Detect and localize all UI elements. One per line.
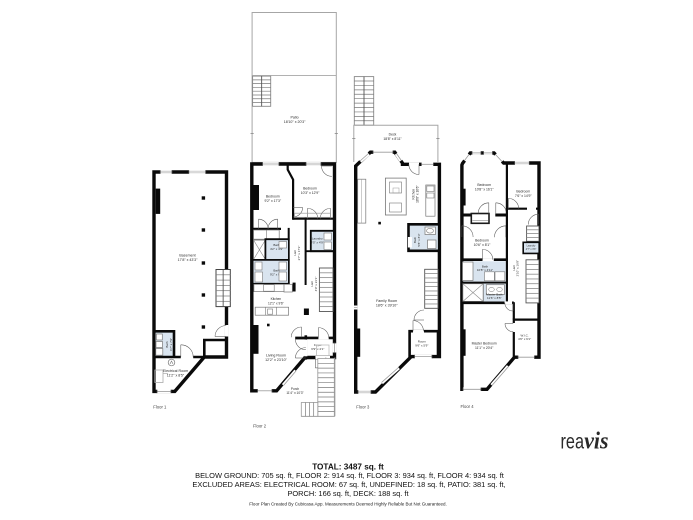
svg-text:10'8" x 4'11": 10'8" x 4'11" (477, 268, 493, 272)
svg-text:EXCLUDED AREAS: ELECTRICAL ROO: EXCLUDED AREAS: ELECTRICAL ROOM: 67 sq. … (192, 480, 505, 489)
svg-text:Deck: Deck (389, 133, 397, 137)
svg-text:2'10" x 16'9": 2'10" x 16'9" (516, 260, 520, 276)
svg-text:2'7" x 17'3": 2'7" x 17'3" (297, 246, 301, 261)
svg-text:18'10" x 20'3": 18'10" x 20'3" (284, 120, 306, 124)
svg-text:4'7" x 7'9": 4'7" x 7'9" (169, 338, 173, 351)
svg-text:10'3" x 12'9": 10'3" x 12'9" (301, 191, 320, 195)
svg-text:Basement: Basement (179, 254, 195, 258)
svg-text:Master Bedroom: Master Bedroom (472, 342, 497, 346)
svg-text:11'4" x 10'3": 11'4" x 10'3" (286, 391, 303, 395)
svg-text:Floor 2: Floor 2 (253, 424, 267, 429)
svg-text:5'8" x 8'3": 5'8" x 8'3" (417, 233, 421, 246)
svg-text:Bedroom: Bedroom (303, 187, 317, 191)
svg-text:17'8" x 43'3": 17'8" x 43'3" (178, 258, 198, 262)
svg-text:7'6" x 14'9": 7'6" x 14'9" (515, 194, 533, 198)
svg-text:6'9" x 4'1": 6'9" x 4'1" (311, 347, 324, 351)
svg-text:Floor Plan Created By Cubicasa: Floor Plan Created By Cubicasa App. Meas… (249, 502, 447, 507)
svg-text:12'2" x 23'10": 12'2" x 23'10" (265, 358, 287, 362)
svg-text:BELOW GROUND: 705 sq. ft, FLOO: BELOW GROUND: 705 sq. ft, FLOOR 2: 914 s… (195, 471, 505, 480)
svg-text:Bedroom: Bedroom (477, 183, 491, 187)
svg-text:11'1" x 20'4": 11'1" x 20'4" (475, 346, 494, 350)
svg-text:Bedroom: Bedroom (516, 190, 530, 194)
svg-text:Living Room: Living Room (266, 354, 286, 358)
svg-text:rea: rea (561, 430, 585, 454)
svg-text:18'8" x 16'6": 18'8" x 16'6" (416, 185, 420, 202)
svg-text:11'2" x 8'5": 11'2" x 8'5" (167, 374, 185, 378)
svg-text:Floor 3: Floor 3 (356, 404, 370, 409)
svg-text:Electrical Room: Electrical Room (163, 369, 188, 373)
svg-text:Bedroom: Bedroom (266, 195, 280, 199)
svg-text:Bedroom: Bedroom (475, 239, 489, 243)
svg-text:Family Room: Family Room (376, 299, 397, 303)
svg-text:9'6" x 5'9": 9'6" x 5'9" (415, 343, 428, 347)
svg-text:18'6" x 39'10": 18'6" x 39'10" (376, 304, 398, 308)
svg-text:PORCH: 166 sq. ft, DECK: 188 s: PORCH: 166 sq. ft, DECK: 188 sq. ft (287, 489, 409, 498)
svg-text:12'1" x 9'6": 12'1" x 9'6" (268, 301, 284, 305)
svg-text:11'6" x 8'5": 11'6" x 8'5" (487, 296, 502, 300)
svg-text:4'9" x 21'1": 4'9" x 21'1" (314, 277, 318, 292)
svg-text:9'2" x 17'3": 9'2" x 17'3" (264, 199, 282, 203)
svg-text:Floor 1: Floor 1 (153, 404, 167, 409)
svg-text:4'7" x 3'3": 4'7" x 3'3" (526, 248, 537, 251)
svg-text:10'6" x 8'1": 10'6" x 8'1" (474, 243, 492, 247)
svg-text:Floor 4: Floor 4 (461, 404, 475, 409)
svg-text:18'8" x 8'11": 18'8" x 8'11" (383, 137, 402, 141)
svg-text:Patio: Patio (290, 116, 298, 120)
svg-text:10'8" x 16'1": 10'8" x 16'1" (475, 187, 494, 191)
svg-text:4'6" x 9'1": 4'6" x 9'1" (518, 337, 531, 341)
svg-text:Laundry: Laundry (527, 245, 536, 248)
svg-text:vis: vis (584, 429, 608, 455)
svg-text:4'5" x 4'9": 4'5" x 4'9" (311, 240, 324, 244)
